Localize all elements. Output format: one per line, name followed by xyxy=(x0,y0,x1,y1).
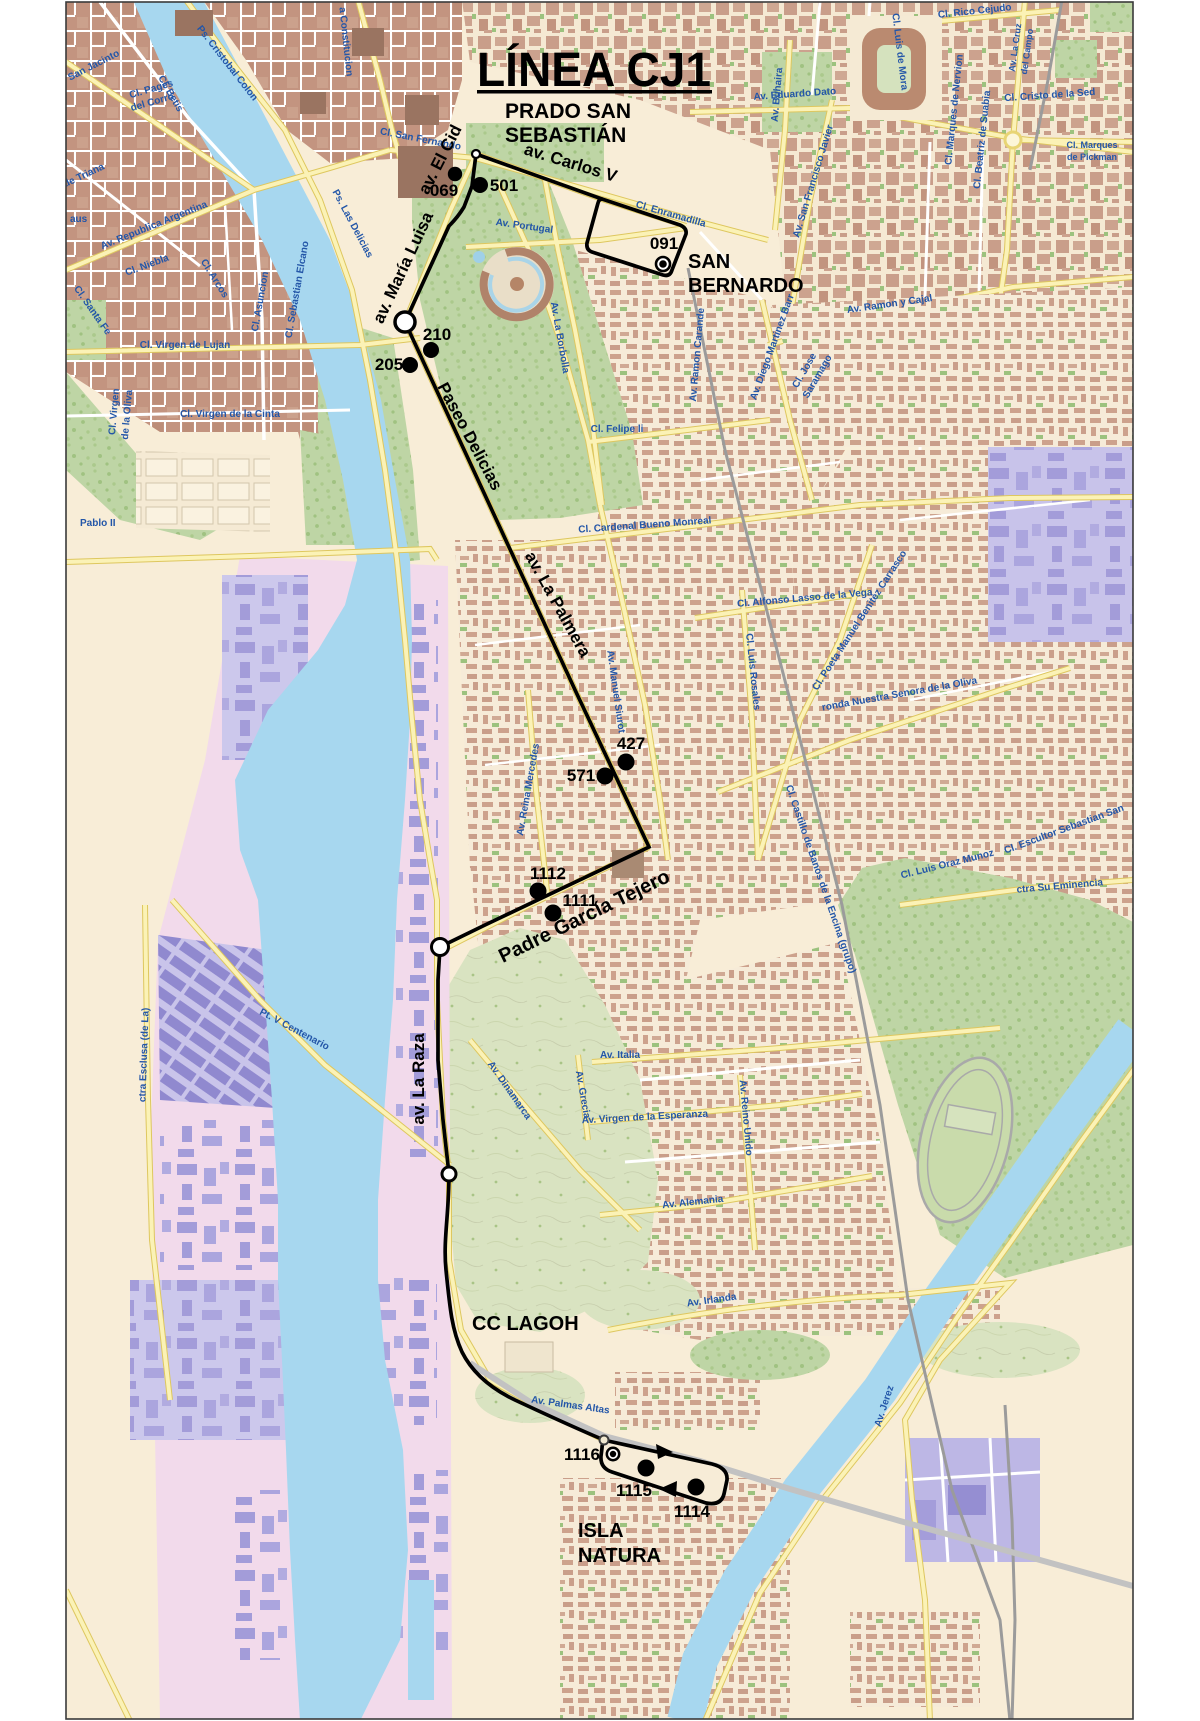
svg-text:Cl. Felipe li: Cl. Felipe li xyxy=(591,424,644,435)
svg-text:Av. Italia: Av. Italia xyxy=(600,1050,640,1061)
svg-text:Cl. Marques: Cl. Marques xyxy=(1066,140,1117,150)
svg-text:PRADO SAN: PRADO SAN xyxy=(505,100,631,123)
svg-text:aus: aus xyxy=(70,214,88,225)
svg-text:LÍNEA CJ1: LÍNEA CJ1 xyxy=(477,43,711,97)
svg-text:Pablo II: Pablo II xyxy=(80,518,116,529)
svg-text:de Pickman: de Pickman xyxy=(1067,152,1117,162)
svg-text:1115: 1115 xyxy=(616,1481,652,1500)
svg-text:BERNARDO: BERNARDO xyxy=(688,275,804,297)
svg-text:SEBASTIÁN: SEBASTIÁN xyxy=(505,124,626,147)
svg-text:CC LAGOH: CC LAGOH xyxy=(472,1313,579,1335)
svg-text:SAN: SAN xyxy=(688,251,730,273)
svg-text:ISLA: ISLA xyxy=(578,1520,624,1542)
svg-text:1112: 1112 xyxy=(530,864,566,883)
svg-text:NATURA: NATURA xyxy=(578,1545,661,1567)
svg-text:1116: 1116 xyxy=(564,1445,600,1464)
svg-text:Cl. Virgen de Lujan: Cl. Virgen de Lujan xyxy=(140,340,230,351)
svg-text:501: 501 xyxy=(490,176,518,195)
svg-text:210: 210 xyxy=(423,325,451,344)
svg-text:571: 571 xyxy=(567,766,595,785)
svg-text:av. La Raza: av. La Raza xyxy=(409,1033,428,1125)
svg-text:069: 069 xyxy=(430,181,458,200)
svg-text:427: 427 xyxy=(617,734,645,753)
svg-text:1114: 1114 xyxy=(674,1502,710,1521)
svg-text:205: 205 xyxy=(375,355,403,374)
svg-text:091: 091 xyxy=(650,234,678,253)
svg-text:1111: 1111 xyxy=(562,891,597,910)
svg-text:Cl. Virgen de la Cinta: Cl. Virgen de la Cinta xyxy=(180,409,280,420)
